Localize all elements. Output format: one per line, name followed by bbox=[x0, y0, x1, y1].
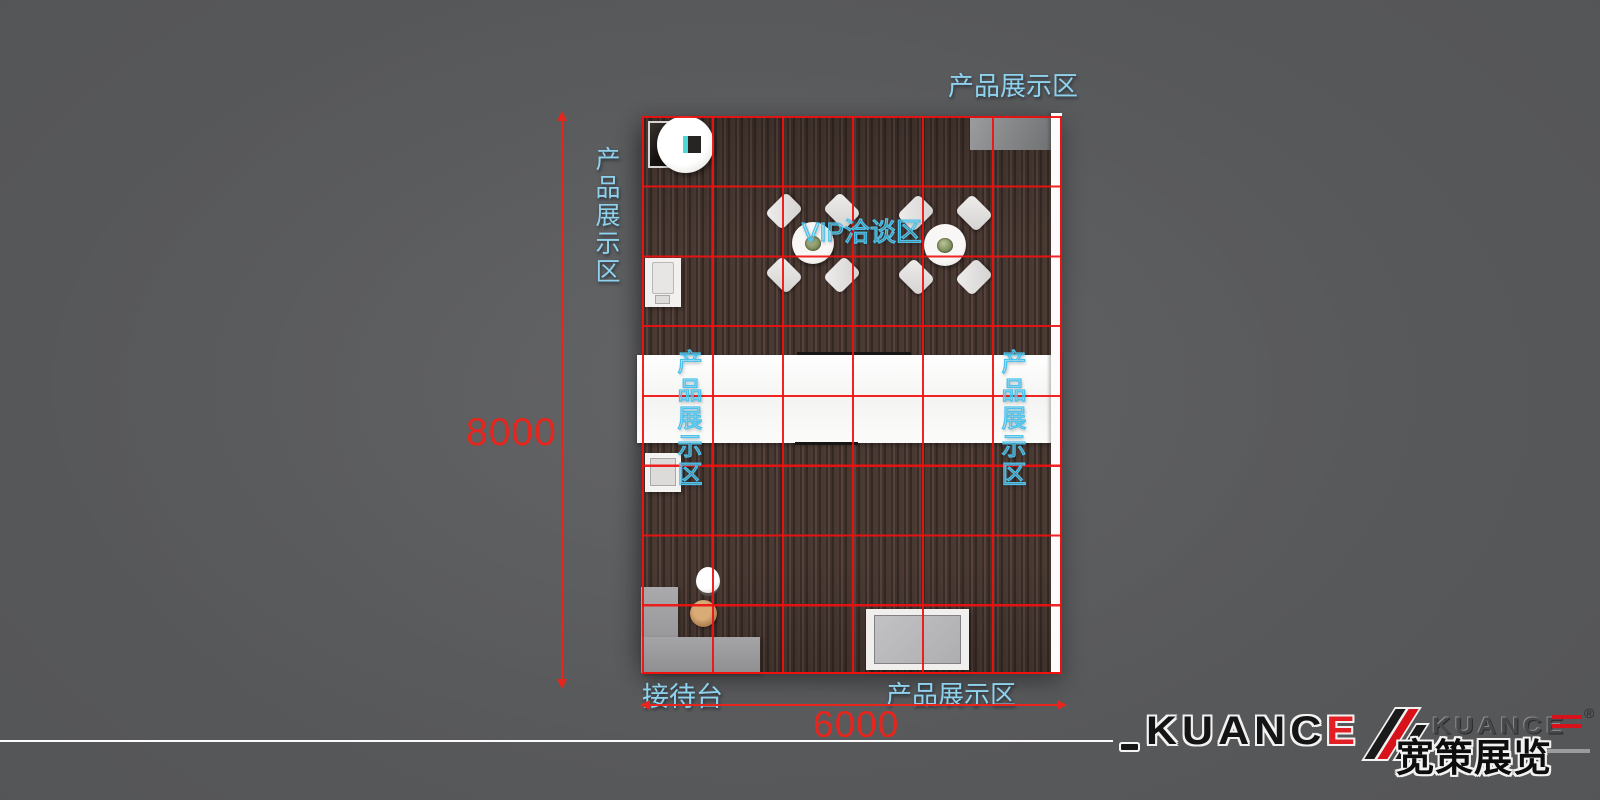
counter-shadow-top bbox=[797, 352, 911, 355]
label-product-display-top: 产品展示区 bbox=[948, 66, 1078, 103]
stripe bbox=[1552, 724, 1582, 728]
design-render-canvas: 产品展示区 产品展示区 VIP洽谈区 产品展示区 产品展示区 接待台 产品展示区… bbox=[0, 0, 1600, 800]
footer-rule-line bbox=[0, 740, 1113, 742]
chair bbox=[765, 192, 803, 230]
logo-chinese-name: 宽策展览 bbox=[1396, 727, 1552, 782]
label-product-display-bottom: 产品展示区 bbox=[886, 675, 1016, 712]
dimension-height-8000: 8000 bbox=[466, 411, 546, 455]
logo-brand-main: KUANC bbox=[1146, 709, 1326, 753]
display-table-bottom bbox=[866, 609, 969, 670]
right-wall-counter bbox=[1051, 113, 1062, 673]
arrow-up-icon bbox=[557, 111, 567, 121]
device-on-table bbox=[683, 136, 701, 153]
label-vip-meeting-area: VIP洽谈区 bbox=[802, 212, 922, 249]
logo-gray-line bbox=[1548, 749, 1590, 753]
table-plant bbox=[937, 238, 953, 253]
label-product-display-left: 产品展示区 bbox=[588, 146, 624, 286]
arrow-down-icon bbox=[557, 679, 567, 689]
water-cooler bbox=[696, 567, 720, 596]
label-reception-desk: 接待台 bbox=[642, 675, 723, 714]
arrow-left-icon bbox=[640, 700, 650, 710]
chair bbox=[955, 258, 993, 296]
logo-brand-wordmark: KUANCE bbox=[1146, 709, 1360, 754]
logo-brand-e: E bbox=[1326, 709, 1360, 753]
logo-e-stripes bbox=[1552, 715, 1582, 733]
cabinet-door bbox=[652, 262, 674, 294]
dimension-line-vertical bbox=[561, 116, 563, 680]
display-platform-top-right bbox=[970, 118, 1054, 150]
chair bbox=[897, 258, 935, 296]
label-product-display-mid-right: 产品展示区 bbox=[994, 349, 1030, 489]
logo-dash bbox=[1121, 744, 1138, 750]
reception-stool bbox=[690, 600, 717, 627]
reception-desk-lower bbox=[641, 637, 760, 673]
chair bbox=[823, 256, 861, 294]
display-table-top bbox=[874, 615, 961, 664]
label-product-display-mid-left: 产品展示区 bbox=[670, 349, 706, 489]
registered-mark-icon: ® bbox=[1584, 705, 1594, 721]
reception-desk-upper bbox=[641, 587, 678, 639]
counter-shadow-bottom bbox=[795, 442, 858, 445]
stripe bbox=[1552, 715, 1582, 719]
chair bbox=[955, 194, 993, 232]
left-wall-cabinet-upper bbox=[645, 258, 681, 307]
chair bbox=[765, 256, 803, 294]
cabinet-drawer bbox=[655, 295, 670, 304]
arrow-right-icon bbox=[1057, 700, 1067, 710]
